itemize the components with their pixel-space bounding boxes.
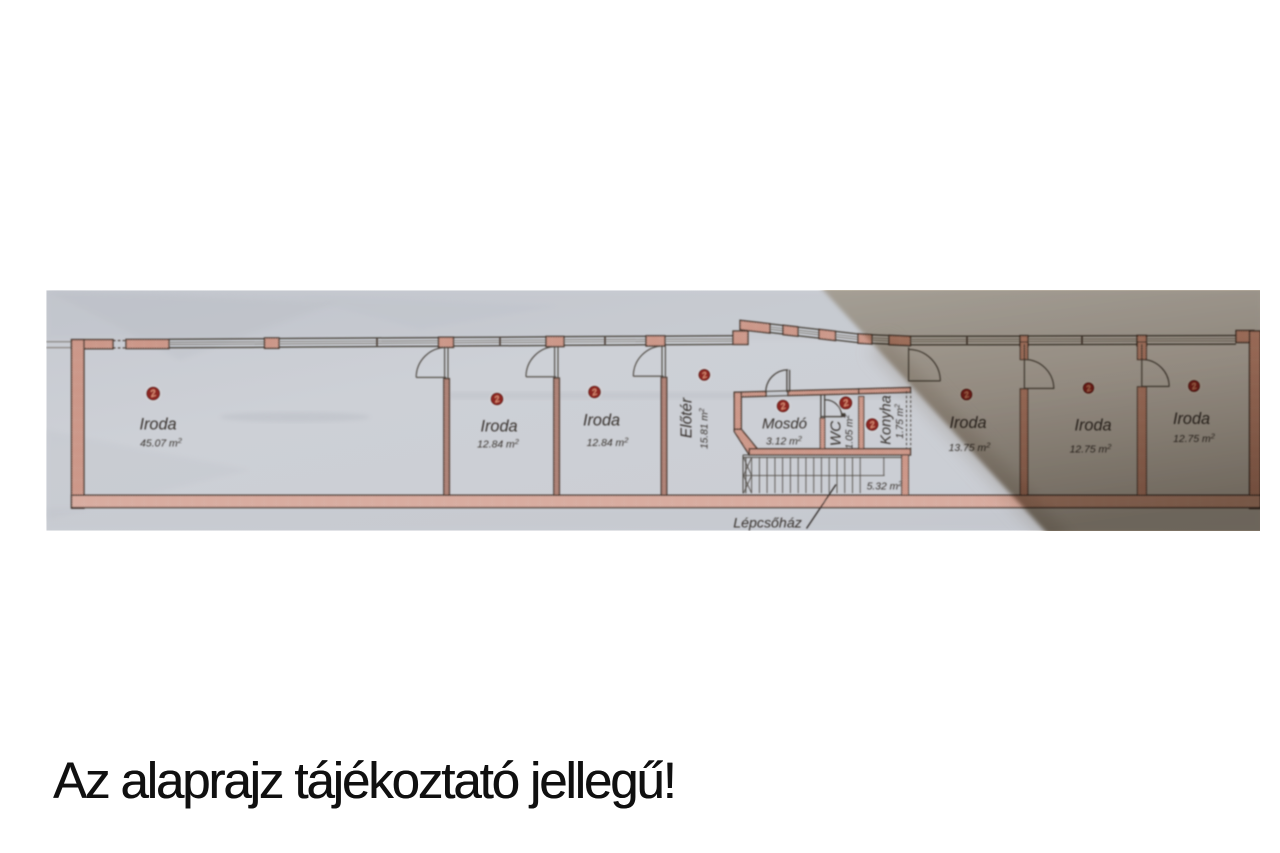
svg-text:12.84 m2: 12.84 m2: [477, 437, 520, 451]
svg-text:Iroda: Iroda: [583, 412, 620, 430]
svg-text:15.81 m2: 15.81 m2: [697, 408, 711, 449]
svg-text:Mosdó: Mosdó: [762, 416, 807, 433]
svg-text:3.12 m2: 3.12 m2: [766, 434, 803, 448]
svg-text:Lépcsőház: Lépcsőház: [733, 516, 802, 532]
svg-text:1.05 m2: 1.05 m2: [842, 415, 856, 450]
svg-text:Előtér: Előtér: [678, 397, 695, 438]
svg-text:1.75 m2: 1.75 m2: [893, 404, 907, 439]
svg-text:Iroda: Iroda: [139, 416, 176, 434]
svg-text:5.32 m2: 5.32 m2: [867, 479, 903, 493]
svg-text:45.07 m2: 45.07 m2: [140, 436, 183, 450]
svg-text:12.84 m2: 12.84 m2: [587, 435, 630, 449]
svg-text:WC: WC: [827, 420, 844, 446]
svg-text:Iroda: Iroda: [480, 418, 517, 436]
svg-text:Konyha: Konyha: [878, 395, 894, 445]
